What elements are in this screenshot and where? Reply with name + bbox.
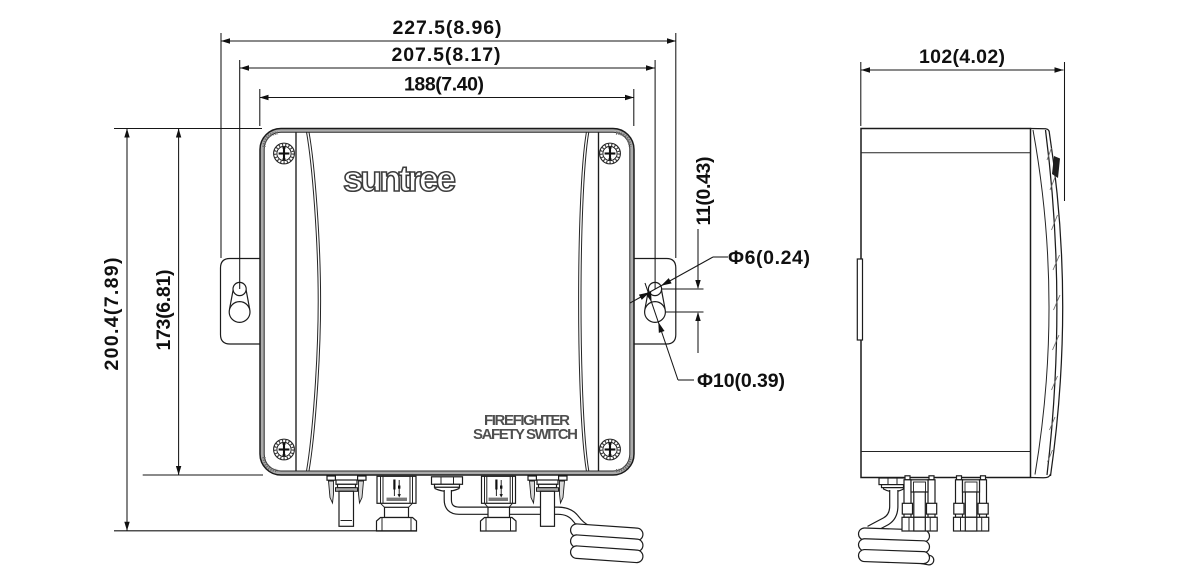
svg-text:227.5(8.96): 227.5(8.96)	[393, 17, 502, 39]
svg-text:Φ10(0.39): Φ10(0.39)	[697, 370, 785, 392]
svg-text:207.5(8.17): 207.5(8.17)	[392, 44, 501, 66]
svg-text:SAFETY SWITCH: SAFETY SWITCH	[473, 426, 578, 443]
svg-text:11(0.43): 11(0.43)	[693, 157, 715, 226]
svg-text:102(4.02): 102(4.02)	[919, 46, 1005, 68]
svg-text:Φ6(0.24): Φ6(0.24)	[728, 247, 810, 269]
svg-text:200.4(7.89): 200.4(7.89)	[101, 258, 123, 371]
svg-text:173(6.81): 173(6.81)	[153, 270, 175, 351]
svg-text:suntree: suntree	[343, 158, 457, 199]
svg-text:188(7.40): 188(7.40)	[404, 74, 484, 96]
